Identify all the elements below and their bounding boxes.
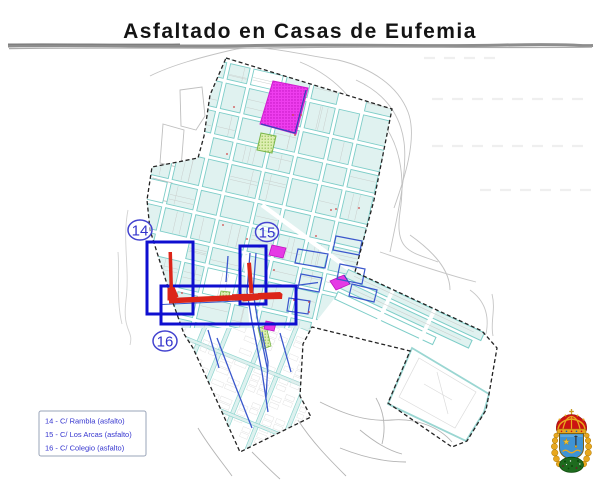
- svg-text:16 - C/ Colegio (asfalto): 16 - C/ Colegio (asfalto): [45, 444, 125, 453]
- svg-text:15: 15: [259, 225, 276, 242]
- svg-text:14 - C/ Rambla (asfalto): 14 - C/ Rambla (asfalto): [45, 417, 125, 426]
- svg-text:16: 16: [157, 334, 174, 351]
- svg-text:15 - C/ Los Arcas (asfalto): 15 - C/ Los Arcas (asfalto): [45, 430, 132, 439]
- svg-text:14: 14: [132, 223, 149, 240]
